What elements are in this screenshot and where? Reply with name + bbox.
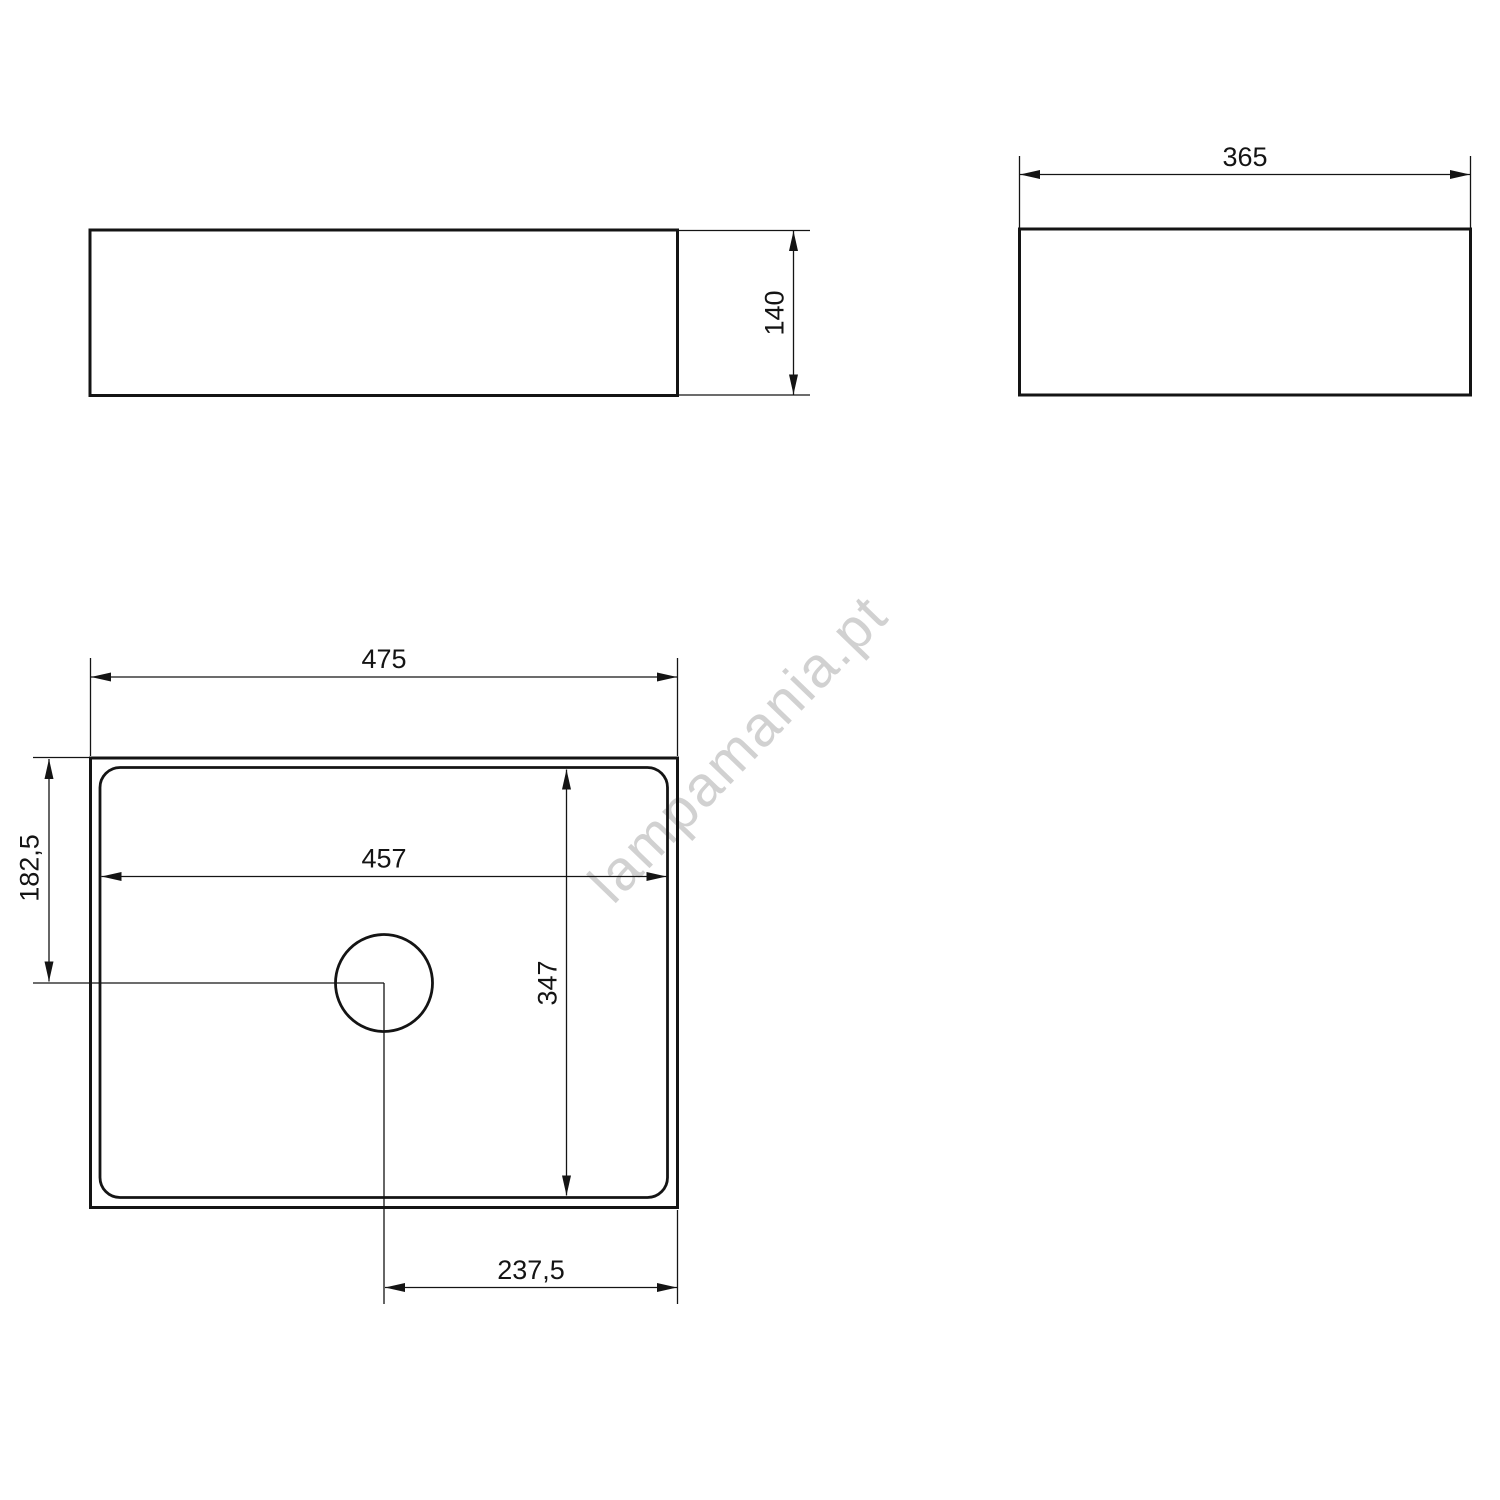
arrow-down-icon: [789, 375, 798, 395]
drawing-canvas: lampamania.pt 140 365: [0, 0, 1500, 1500]
side-view: 365: [1020, 142, 1471, 395]
drain-top-dimension-label: 182,5: [15, 834, 45, 902]
arrow-up-icon: [45, 759, 54, 779]
side-view-outline: [1020, 229, 1471, 395]
inner-width-dimension-label: 457: [361, 844, 406, 874]
front-height-dimension-label: 140: [760, 290, 790, 335]
front-view: 140: [90, 230, 810, 396]
drain-right-dimension-label: 237,5: [497, 1255, 565, 1285]
outer-width-dimension-label: 475: [361, 644, 406, 674]
arrow-left-icon: [1020, 170, 1040, 179]
technical-drawing-page: lampamania.pt 140 365: [0, 0, 1500, 1500]
arrow-up-icon: [562, 770, 571, 790]
arrow-left-icon: [385, 1283, 405, 1292]
arrow-down-icon: [562, 1176, 571, 1196]
arrow-left-icon: [91, 673, 111, 682]
side-width-dimension-label: 365: [1222, 142, 1267, 172]
watermark-text: lampamania.pt: [576, 583, 900, 915]
arrow-right-icon: [657, 1283, 677, 1292]
arrow-left-icon: [102, 872, 122, 881]
arrow-right-icon: [657, 673, 677, 682]
arrow-right-icon: [1450, 170, 1470, 179]
inner-depth-dimension-label: 347: [533, 960, 563, 1005]
arrow-up-icon: [789, 231, 798, 251]
front-view-outline: [90, 230, 678, 396]
plan-view: 475 457 182,5 347 237,5: [15, 644, 678, 1304]
arrow-down-icon: [45, 962, 54, 982]
